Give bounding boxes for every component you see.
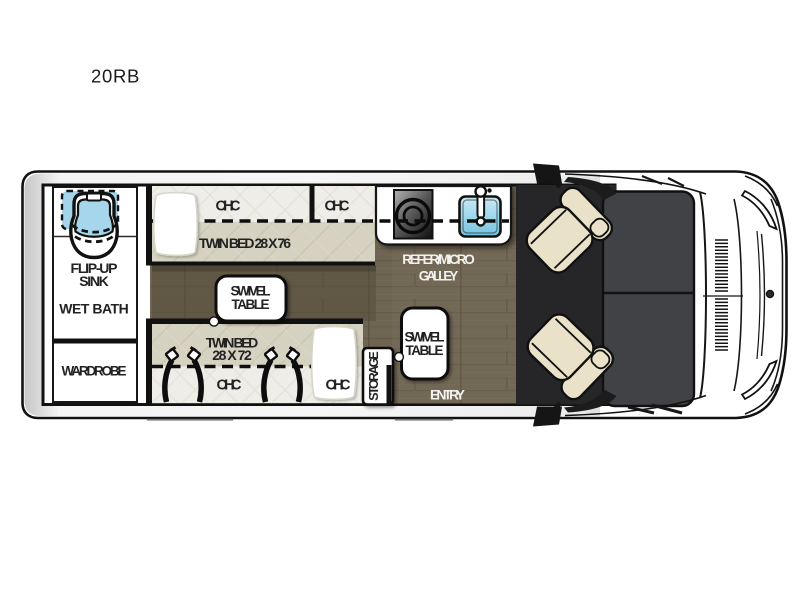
svg-text:OHC: OHC	[326, 378, 352, 394]
svg-text:20RB: 20RB	[91, 66, 140, 87]
svg-text:TWIN BED 28 X 76: TWIN BED 28 X 76	[199, 235, 291, 251]
svg-text:OHC: OHC	[216, 199, 242, 215]
svg-text:GALLEY: GALLEY	[419, 269, 459, 284]
svg-text:OHC: OHC	[217, 378, 243, 394]
svg-text:ENTRY: ENTRY	[430, 387, 466, 403]
svg-text:28 X 72: 28 X 72	[212, 347, 252, 363]
svg-text:WET BATH: WET BATH	[59, 301, 129, 317]
svg-text:TABLE: TABLE	[232, 297, 270, 312]
svg-text:REFER/MICRO: REFER/MICRO	[402, 252, 475, 267]
svg-text:WARDROBE: WARDROBE	[62, 364, 127, 379]
svg-text:STORAGE: STORAGE	[367, 351, 381, 401]
svg-text:OHC: OHC	[325, 199, 351, 215]
svg-text:TABLE: TABLE	[406, 343, 444, 358]
svg-text:SINK: SINK	[79, 273, 109, 289]
